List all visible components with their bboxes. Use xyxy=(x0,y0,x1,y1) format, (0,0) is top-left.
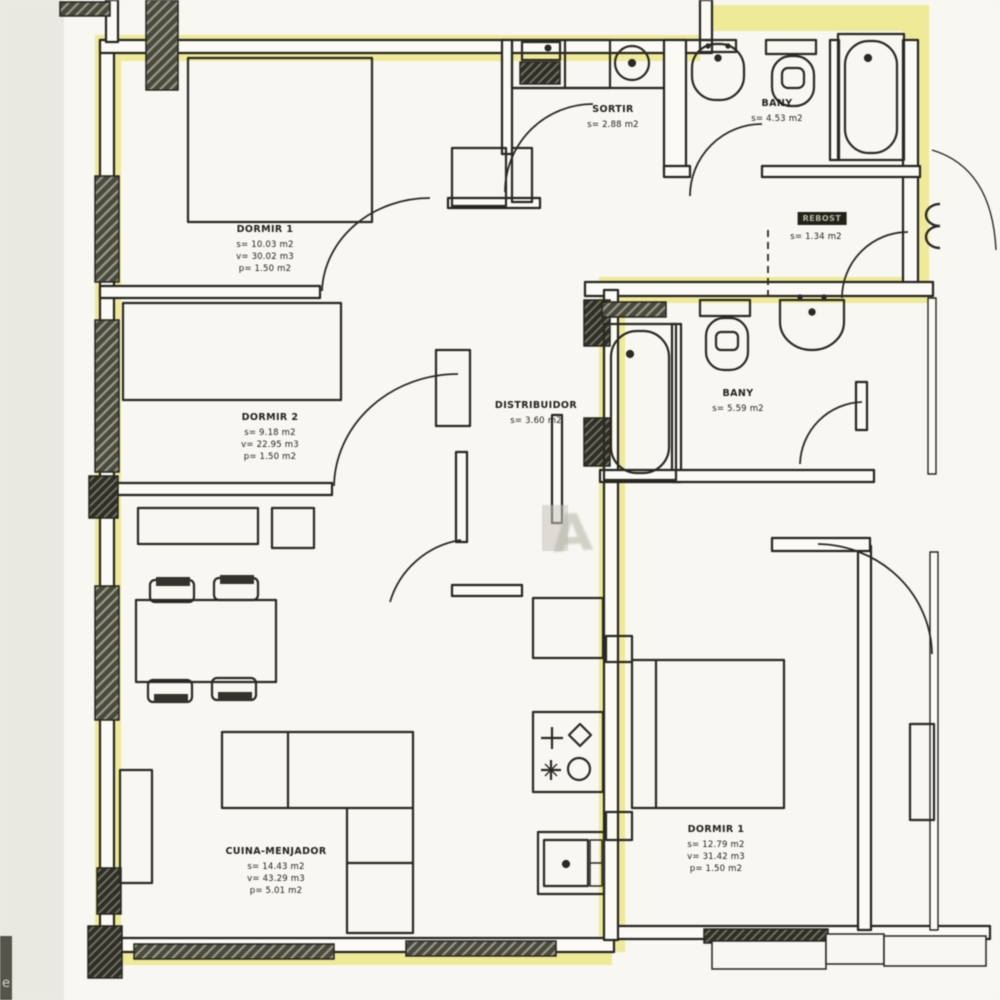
scan-corner-mark: e xyxy=(2,976,10,991)
room-label-cuina-menjador: CUINA-MENJADOR s= 14.43 m2 v= 43.29 m3 p… xyxy=(225,846,326,897)
room-label-sortir: SORTIR s= 2.88 m2 xyxy=(587,104,639,131)
room-label-rebost: REBOST xyxy=(798,212,847,225)
room-label-distribuidor: DISTRIBUIDOR s= 3.60 m2 xyxy=(495,400,577,427)
floor-plan-drawing xyxy=(0,0,1000,1000)
room-label-dormir2-left: DORMIR 2 s= 9.18 m2 v= 22.95 m3 p= 1.50 … xyxy=(241,412,299,463)
scan-background xyxy=(0,0,1000,1000)
room-label-rebost-area: s= 1.34 m2 xyxy=(790,231,842,243)
floor-plan-page: DORMIR 1 s= 10.03 m2 v= 30.02 m3 p= 1.50… xyxy=(0,0,1000,1000)
room-label-dormir1-right: DORMIR 1 s= 12.79 m2 v= 31.42 m3 p= 1.50… xyxy=(687,824,745,875)
scan-watermark: A xyxy=(550,503,594,566)
room-label-dormir1-left: DORMIR 1 s= 10.03 m2 v= 30.02 m3 p= 1.50… xyxy=(236,224,294,275)
room-label-bany-top: BANY s= 4.53 m2 xyxy=(751,98,803,125)
room-label-bany-right: BANY s= 5.59 m2 xyxy=(712,388,764,415)
